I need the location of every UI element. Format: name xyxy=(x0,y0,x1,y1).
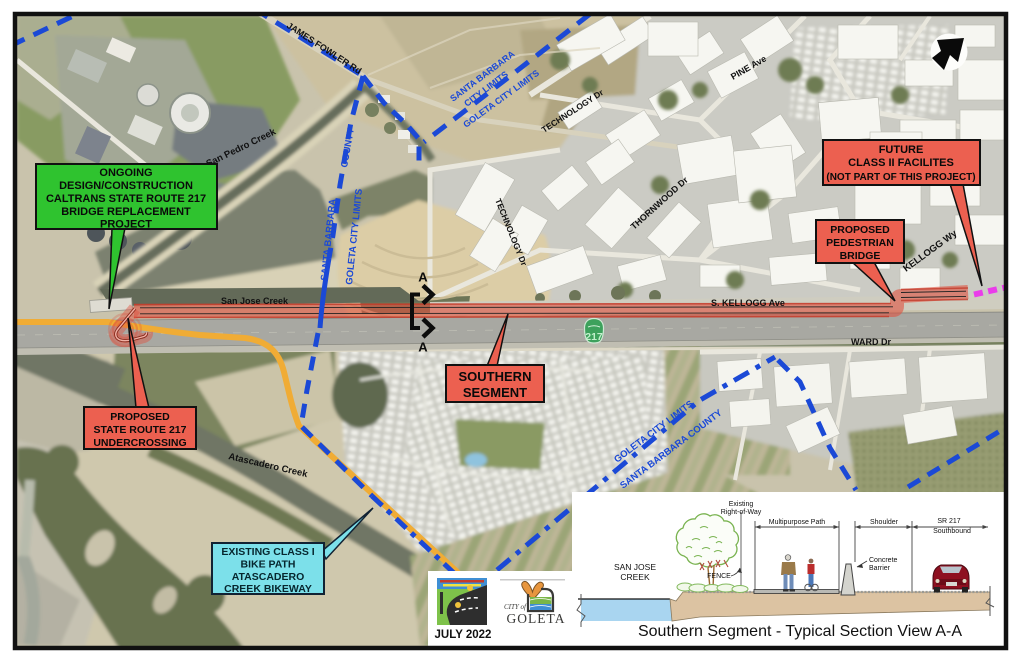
svg-text:PROJECT: PROJECT xyxy=(100,219,152,231)
svg-text:CREEK: CREEK xyxy=(620,572,650,582)
svg-text:PROPOSED: PROPOSED xyxy=(830,224,890,236)
svg-text:ATASCADERO: ATASCADERO xyxy=(232,571,305,583)
svg-text:UNDERCROSSING: UNDERCROSSING xyxy=(93,437,186,449)
svg-text:SOUTHERN: SOUTHERN xyxy=(459,369,532,384)
svg-text:San Jose Creek: San Jose Creek xyxy=(221,296,289,306)
svg-text:Existing: Existing xyxy=(729,501,754,508)
svg-text:Shoulder: Shoulder xyxy=(870,519,899,526)
svg-text:BIKE PATH: BIKE PATH xyxy=(240,559,295,571)
svg-text:STATE ROUTE 217: STATE ROUTE 217 xyxy=(94,424,187,436)
svg-text:CREEK BIKEWAY: CREEK BIKEWAY xyxy=(224,583,312,595)
svg-text:S. KELLOGG Ave: S. KELLOGG Ave xyxy=(711,298,785,308)
svg-text:BRIDGE: BRIDGE xyxy=(840,250,881,262)
svg-text:Multipurpose Path: Multipurpose Path xyxy=(769,519,826,526)
svg-text:CLASS II FACILITES: CLASS II FACILITES xyxy=(848,157,954,169)
svg-text:CITY of: CITY of xyxy=(504,603,527,611)
svg-text:Right-of-Way: Right-of-Way xyxy=(721,509,762,516)
svg-text:SAN JOSE: SAN JOSE xyxy=(614,562,656,572)
svg-text:ONGOING: ONGOING xyxy=(99,167,152,179)
svg-text:SR 217: SR 217 xyxy=(937,518,960,525)
svg-text:Southbound: Southbound xyxy=(933,528,971,535)
svg-text:FUTURE: FUTURE xyxy=(879,144,924,156)
svg-text:Southern Segment - Typical Sec: Southern Segment - Typical Section View … xyxy=(638,623,962,640)
svg-text:Barrier: Barrier xyxy=(869,565,891,572)
svg-text:SEGMENT: SEGMENT xyxy=(463,385,527,400)
svg-text:(NOT PART OF THIS PROJECT): (NOT PART OF THIS PROJECT) xyxy=(826,172,975,183)
svg-text:BRIDGE REPLACEMENT: BRIDGE REPLACEMENT xyxy=(61,206,191,218)
svg-text:WARD Dr: WARD Dr xyxy=(851,337,891,347)
svg-text:JULY 2022: JULY 2022 xyxy=(435,629,492,641)
svg-text:A: A xyxy=(418,340,428,355)
svg-text:CALTRANS STATE ROUTE 217: CALTRANS STATE ROUTE 217 xyxy=(46,193,206,205)
svg-text:Concrete: Concrete xyxy=(869,557,898,564)
svg-text:EXISTING CLASS I: EXISTING CLASS I xyxy=(221,546,314,558)
svg-text:217: 217 xyxy=(585,331,603,343)
svg-text:A: A xyxy=(418,270,428,285)
svg-text:GOLETA: GOLETA xyxy=(507,611,566,626)
svg-text:DESIGN/CONSTRUCTION: DESIGN/CONSTRUCTION xyxy=(59,180,193,192)
svg-text:PEDESTRIAN: PEDESTRIAN xyxy=(826,237,894,249)
svg-text:FENCE: FENCE xyxy=(707,573,731,580)
svg-text:PROPOSED: PROPOSED xyxy=(110,411,170,423)
